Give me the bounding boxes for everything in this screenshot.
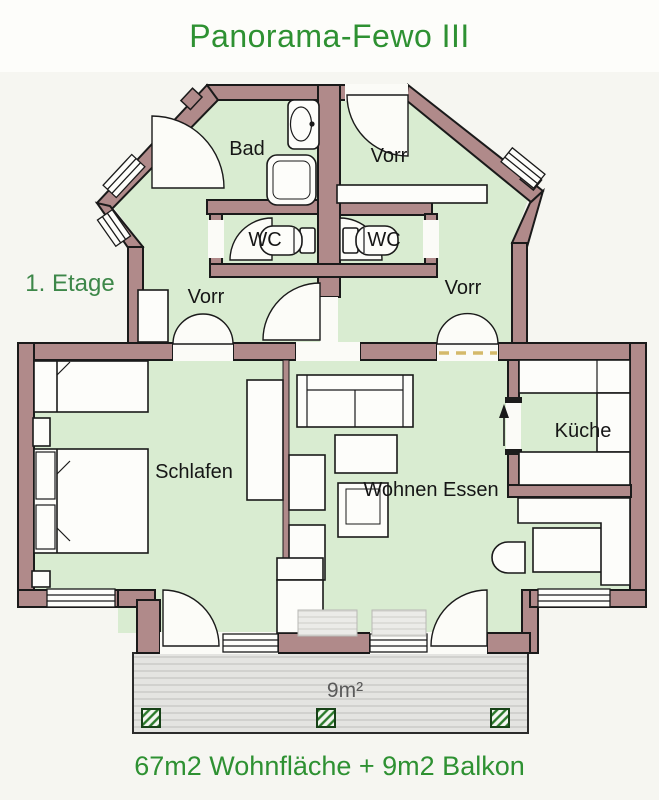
wall-kitchen-bottom [508,485,631,497]
area-caption: 67m2 Wohnfläche + 9m2 Balkon [0,744,659,788]
room-label-vorr-top: Vorr [371,145,408,167]
wall-kitchen-left-upper [508,360,519,402]
balcony-hatch-marker [317,709,335,727]
wall-pier-left-b [137,600,160,653]
window-bottom-right [538,589,610,607]
wall-main-top-4 [498,343,646,360]
hall-wardrobe-left [138,290,168,342]
wall-main-top-1 [18,343,173,360]
room-label-wc-right: WC [367,229,400,251]
floor-plan-page: Panorama-Fewo III [0,0,659,800]
nightstand [32,571,50,587]
shelf [289,455,325,510]
wall-left [18,343,34,607]
floor-level-label: 1. Etage [25,270,114,297]
wall-wc-bottom [210,264,437,277]
coffee-table [335,435,397,473]
hall-cabinet-right [337,185,487,203]
balcony-hatch-marker [142,709,160,727]
room-label-schlafen: Schlafen [155,461,233,483]
double-bed [34,449,148,553]
balcony-hatch-marker [491,709,509,727]
room-label-vorr-right: Vorr [445,277,482,299]
door-threshold [298,610,357,636]
wall-main-top-3 [360,343,437,360]
balcony-area-label: 9m² [327,679,363,702]
room-label-wohnen-essen: Wohnen Essen [363,479,498,501]
nightstand [33,418,50,446]
room-label-vorr-left: Vorr [188,286,225,308]
wardrobe [247,380,283,500]
window-bottom-left [47,589,115,607]
wall-room-divider [283,360,289,558]
wall-wc-top-right [340,202,432,215]
single-bed [34,361,148,412]
sofa [297,375,413,427]
cabinet [277,558,323,580]
room-label-wc-left: WC [248,229,281,251]
door-threshold [372,610,426,636]
wall-right [630,343,646,607]
room-label-bad: Bad [229,138,265,160]
wall-pier-right-b [487,633,530,653]
window-balcony-door-right [370,634,427,652]
wall-main-top-2 [233,343,296,360]
sink [288,100,319,149]
shower [267,155,316,205]
room-label-kueche: Küche [555,420,612,442]
floor-plan-drawing: Bad Vorr WC WC Vorr Vorr Schlafen Wohnen… [0,0,659,800]
window-balcony-door-left [223,634,278,652]
dining-table [533,528,603,572]
dining-chair [492,542,525,573]
